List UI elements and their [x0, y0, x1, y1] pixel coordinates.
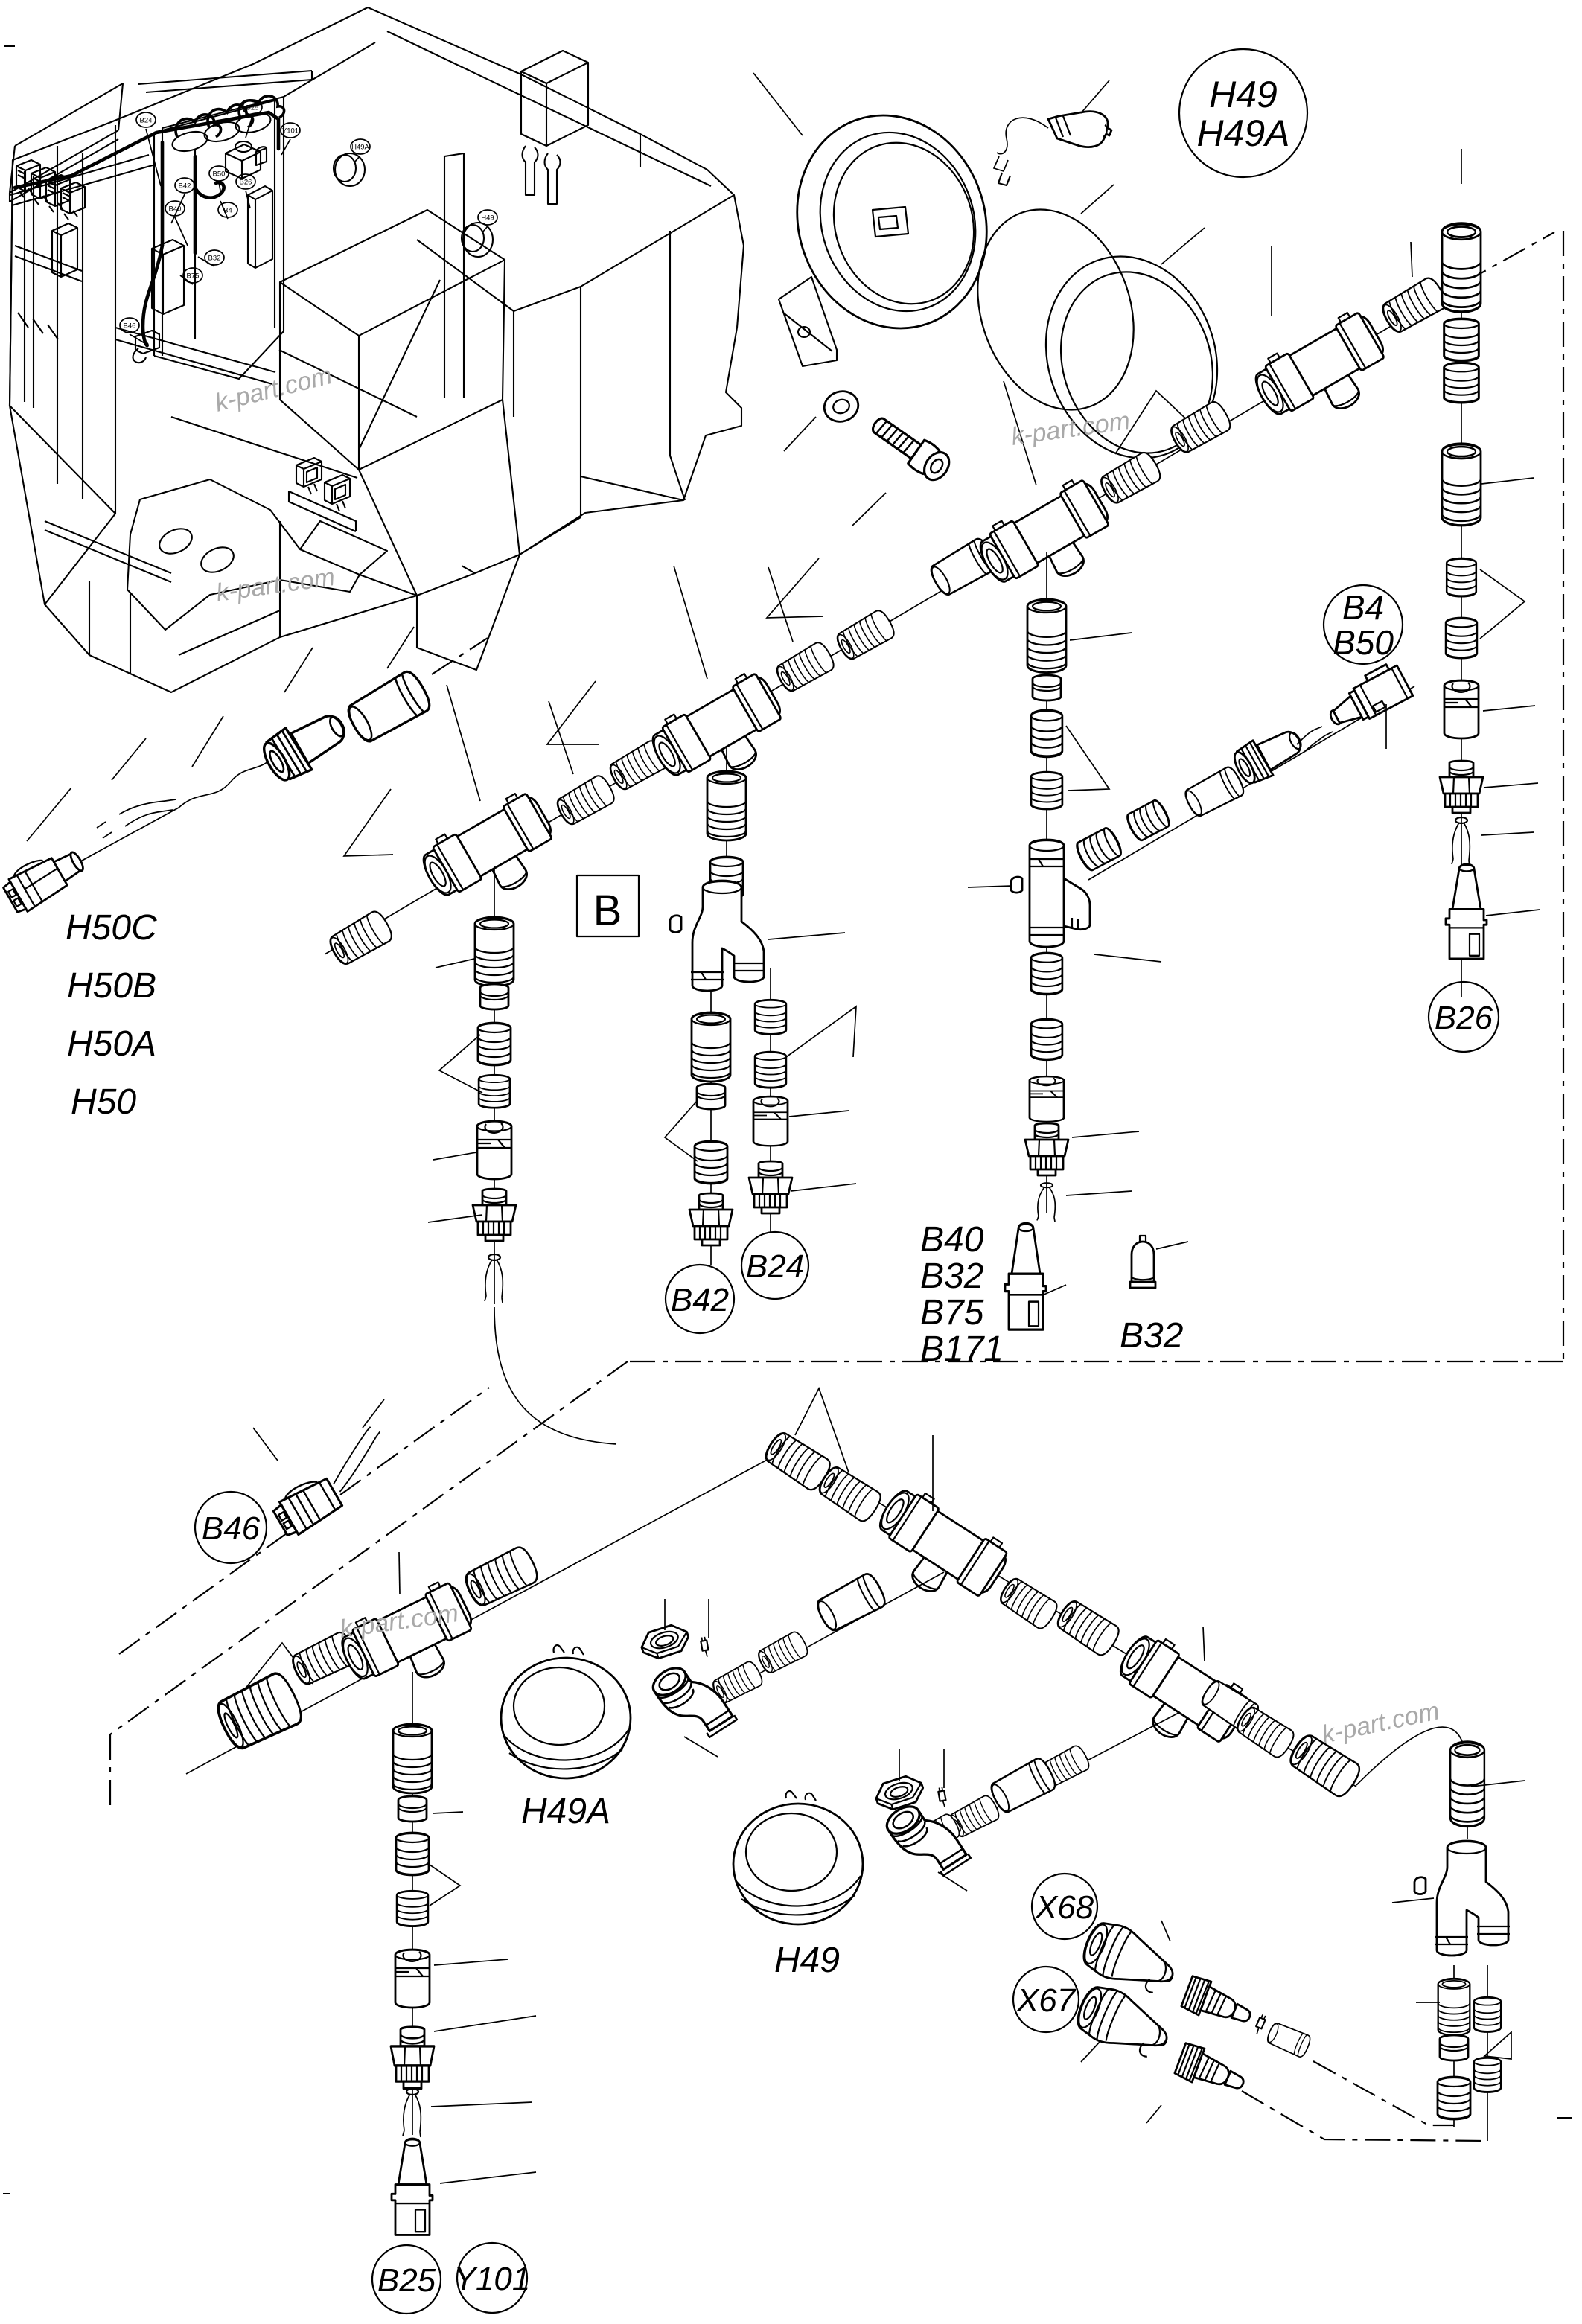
svg-text:B50: B50	[1333, 623, 1394, 662]
svg-text:B75: B75	[920, 1293, 984, 1332]
svg-text:Y101: Y101	[454, 2261, 531, 2297]
svg-text:B32: B32	[920, 1257, 983, 1296]
svg-text:B46: B46	[124, 322, 136, 331]
svg-text:H49: H49	[774, 1941, 840, 1980]
svg-text:B24: B24	[746, 1248, 804, 1285]
svg-text:B26: B26	[1435, 1000, 1493, 1036]
svg-text:B40: B40	[920, 1220, 984, 1260]
svg-text:B32: B32	[208, 255, 221, 263]
svg-text:B24: B24	[140, 117, 153, 125]
svg-text:X67: X67	[1016, 1982, 1077, 2019]
svg-text:H50: H50	[71, 1082, 136, 1122]
svg-text:B75: B75	[187, 272, 200, 281]
svg-text:B: B	[593, 887, 622, 935]
svg-text:B26: B26	[240, 179, 252, 187]
svg-text:B42: B42	[179, 182, 191, 191]
svg-text:B50: B50	[213, 170, 226, 179]
svg-text:H49A: H49A	[521, 1792, 610, 1831]
svg-text:H50A: H50A	[67, 1024, 156, 1064]
svg-text:H49A: H49A	[1196, 112, 1289, 154]
svg-text:B25: B25	[246, 104, 259, 112]
svg-text:B42: B42	[671, 1282, 729, 1318]
svg-text:B46: B46	[202, 1510, 261, 1547]
svg-text:B171: B171	[920, 1329, 1004, 1369]
svg-text:X68: X68	[1035, 1889, 1094, 1926]
svg-text:B4: B4	[1342, 588, 1384, 627]
svg-text:H49: H49	[481, 214, 494, 223]
svg-text:B25: B25	[377, 2262, 436, 2299]
svg-text:H49A: H49A	[351, 144, 369, 152]
svg-text:H50B: H50B	[67, 966, 156, 1006]
svg-text:H49: H49	[1209, 74, 1278, 115]
svg-text:B32: B32	[1120, 1316, 1183, 1356]
svg-text:H50C: H50C	[66, 908, 157, 948]
svg-text:Y101: Y101	[282, 127, 299, 135]
